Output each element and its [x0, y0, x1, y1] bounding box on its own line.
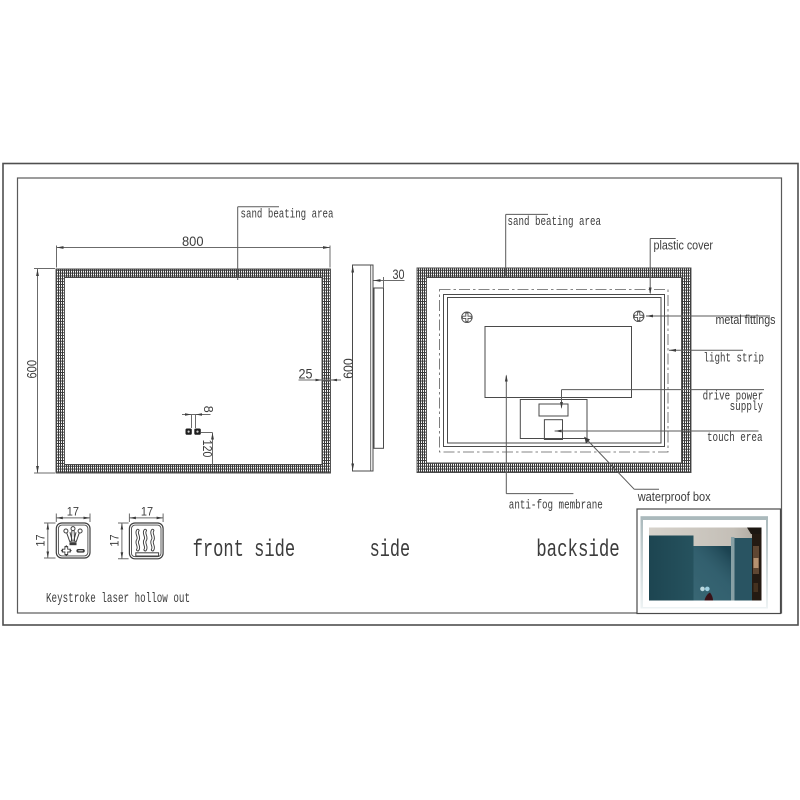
- svg-text:17: 17: [34, 534, 48, 546]
- svg-text:anti-fog membrane: anti-fog membrane: [509, 498, 603, 513]
- svg-text:600: 600: [24, 360, 40, 379]
- svg-text:supply: supply: [730, 399, 764, 414]
- svg-text:waterproof box: waterproof box: [637, 490, 712, 504]
- svg-text:800: 800: [182, 233, 204, 249]
- svg-text:25: 25: [299, 366, 313, 382]
- svg-text:side: side: [370, 537, 411, 564]
- svg-text:30: 30: [393, 266, 405, 282]
- svg-text:front side: front side: [193, 537, 296, 564]
- svg-text:17: 17: [67, 505, 79, 519]
- svg-text:8: 8: [201, 406, 215, 413]
- svg-text:600: 600: [340, 358, 356, 379]
- svg-text:sand beating area: sand beating area: [508, 214, 602, 229]
- svg-text:120: 120: [200, 440, 215, 458]
- svg-text:backside: backside: [536, 537, 620, 564]
- svg-text:metal fittings: metal fittings: [716, 313, 776, 327]
- svg-text:sand beating area: sand beating area: [241, 207, 334, 222]
- svg-text:17: 17: [108, 534, 122, 546]
- svg-text:Keystroke laser hollow out: Keystroke laser hollow out: [46, 591, 190, 607]
- svg-text:17: 17: [141, 505, 153, 519]
- svg-text:light strip: light strip: [704, 351, 765, 366]
- svg-text:touch erea: touch erea: [707, 430, 763, 445]
- svg-text:plastic cover: plastic cover: [654, 239, 714, 253]
